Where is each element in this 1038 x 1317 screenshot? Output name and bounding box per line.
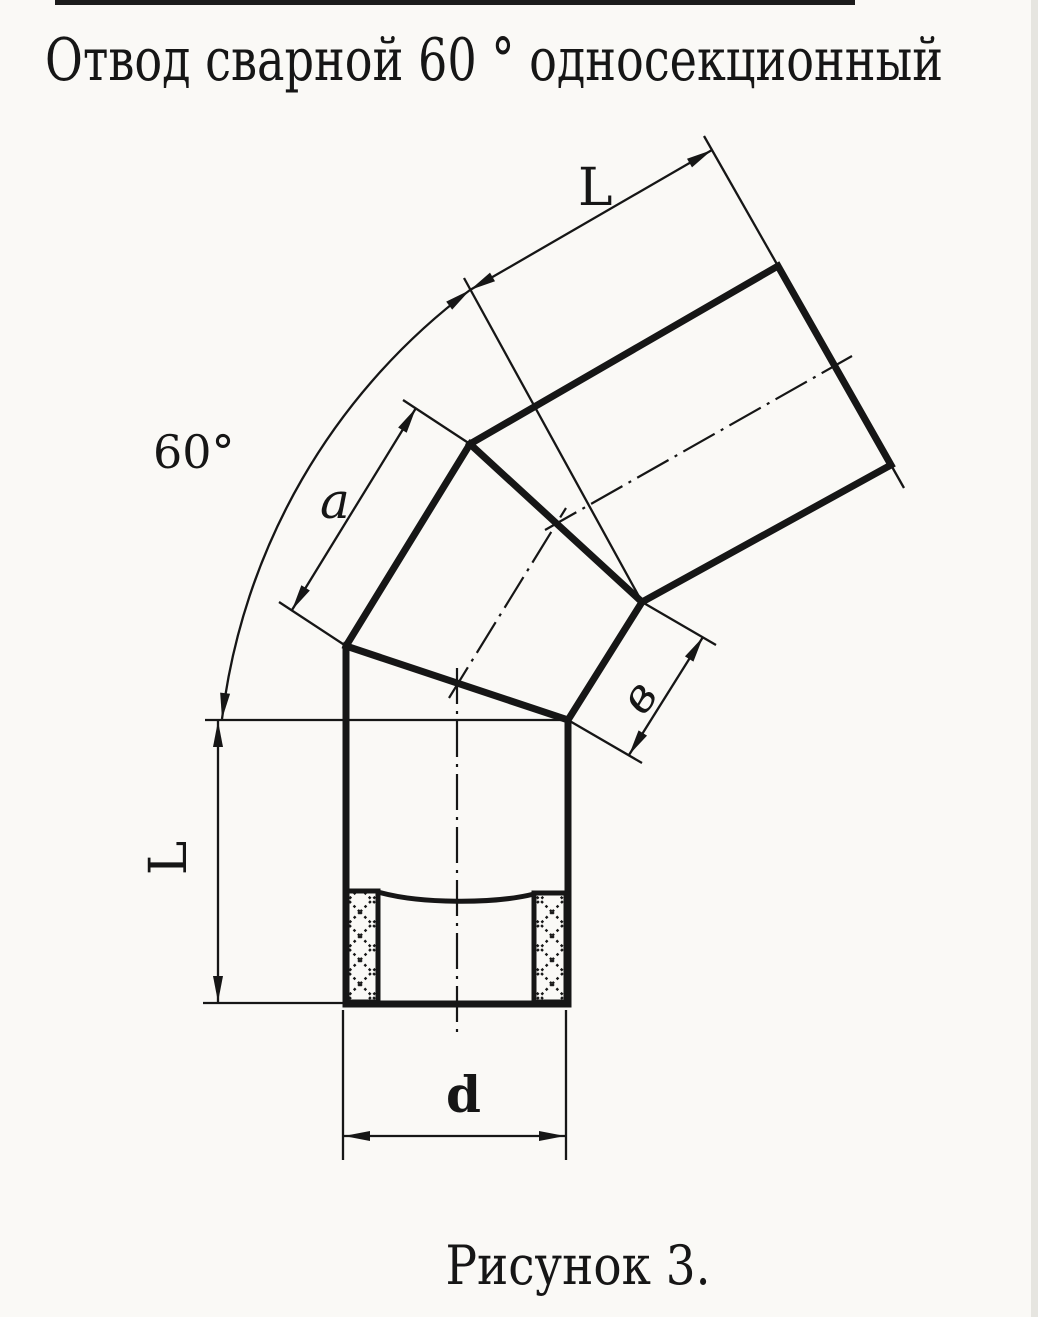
- ext-line-v-lower: [568, 720, 642, 763]
- sleeve-wall-section-right: [534, 893, 566, 1002]
- ext-line-v-upper: [642, 602, 716, 645]
- scanned-drawing-page: L 60° a в L d Отвод сварной 60 ° односек…: [0, 0, 1038, 1317]
- dim-label-top-L: L: [578, 158, 613, 218]
- centerline-upper-pipe: [545, 356, 852, 530]
- angle-label: 60°: [153, 425, 235, 479]
- technical-drawing: L 60° a в L d Отвод сварной 60 ° односек…: [0, 0, 1038, 1317]
- dim-label-left-L: L: [139, 841, 199, 876]
- dim-line-a: [292, 408, 416, 610]
- ext-line-upper-weld: [464, 278, 642, 602]
- end-face-tick: [891, 465, 904, 488]
- elbow-outline: [346, 266, 891, 1004]
- dim-label-a: a: [320, 472, 350, 530]
- ext-line-a-lower: [279, 602, 346, 646]
- scan-artifact-top: [55, 0, 855, 5]
- dim-label-v: в: [609, 670, 669, 723]
- figure-caption: Рисунок 3.: [446, 1234, 711, 1297]
- sleeve-wall-section-left: [346, 891, 378, 1002]
- ext-line-a-upper: [403, 400, 470, 444]
- ext-line-end-face: [704, 136, 778, 266]
- dim-label-d: d: [446, 1065, 481, 1124]
- scan-artifact-right-edge: [1031, 0, 1038, 1317]
- centerline-middle-segment: [449, 508, 566, 698]
- drawing-title: Отвод сварной 60 ° односекционный: [45, 25, 943, 94]
